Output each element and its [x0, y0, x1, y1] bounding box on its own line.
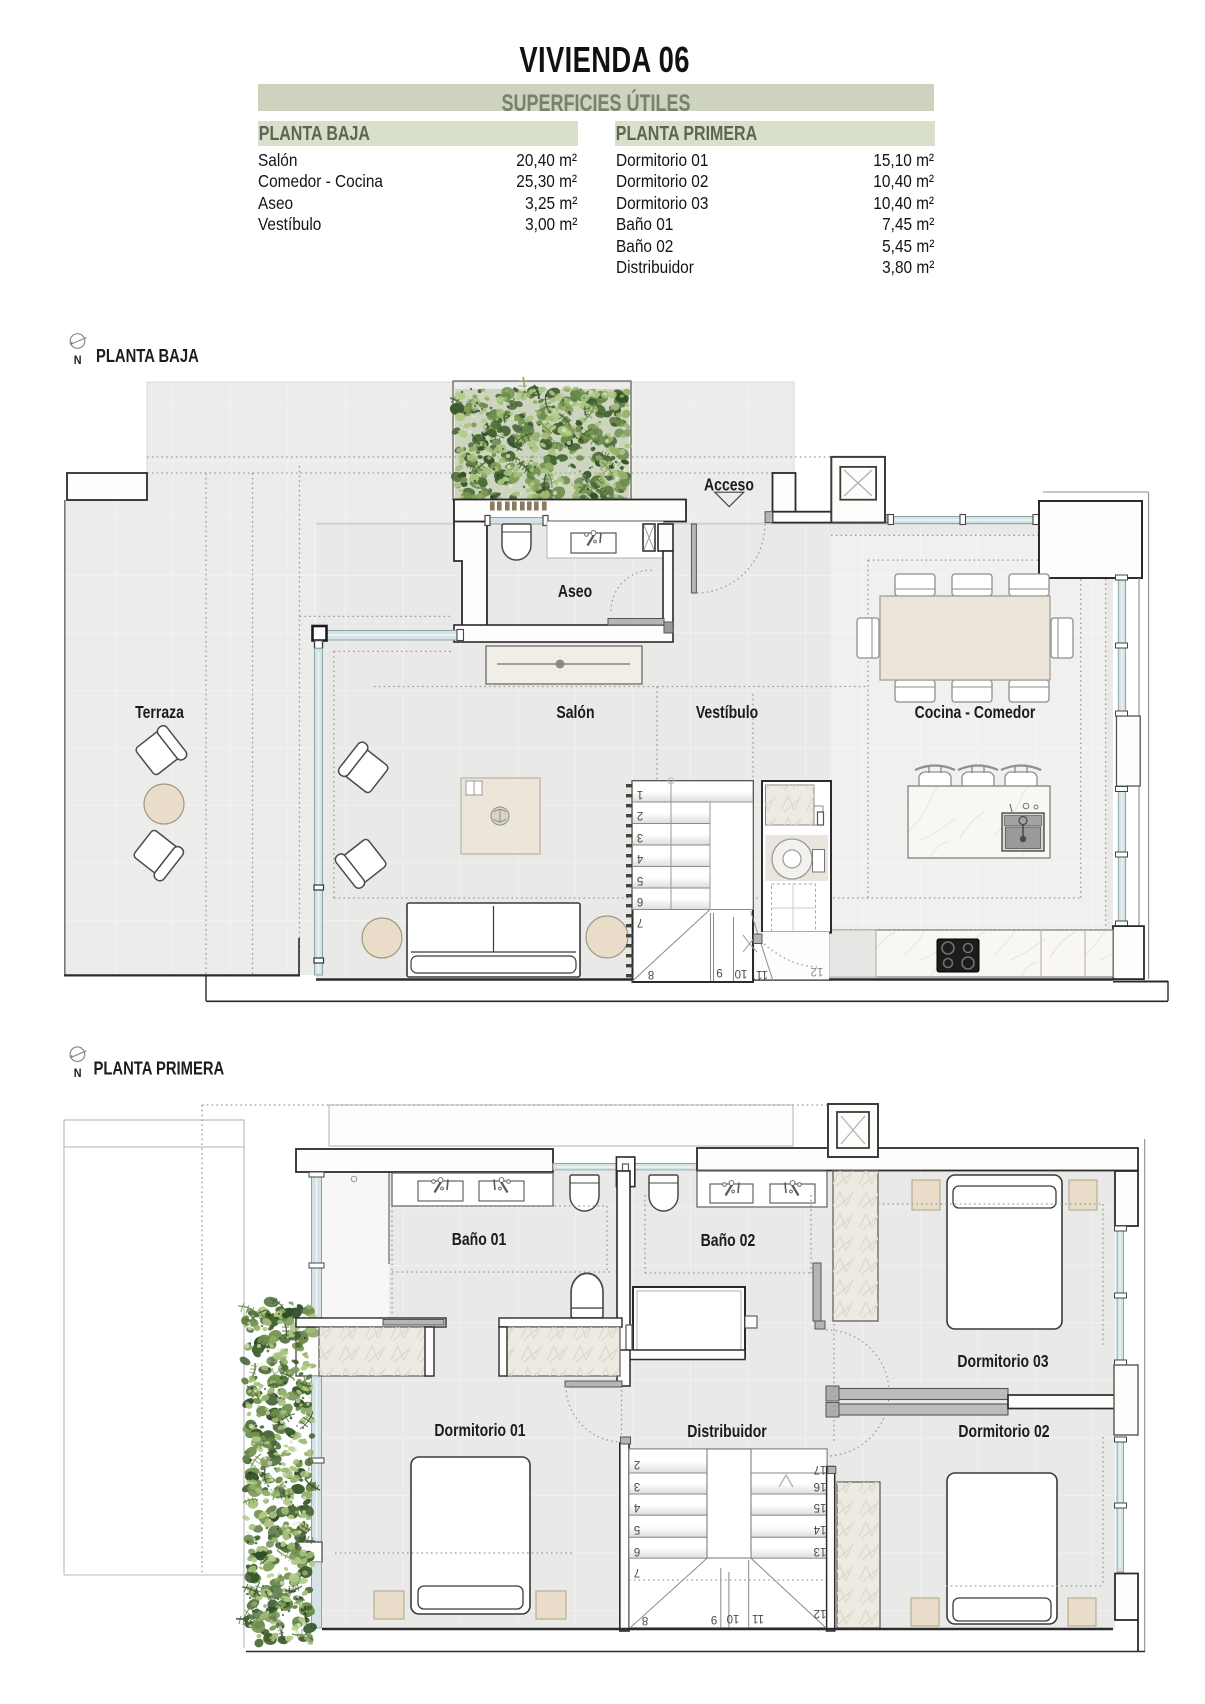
svg-text:Salón: Salón [556, 702, 594, 722]
svg-text:7: 7 [637, 916, 643, 928]
svg-text:12: 12 [814, 1607, 827, 1619]
svg-text:16: 16 [814, 1480, 827, 1492]
svg-text:Dormitorio 02: Dormitorio 02 [958, 1421, 1049, 1441]
svg-text:8: 8 [642, 1614, 648, 1626]
svg-text:14: 14 [813, 1523, 826, 1535]
svg-text:Cocina - Comedor: Cocina - Comedor [915, 702, 1036, 722]
svg-text:9: 9 [716, 966, 722, 978]
svg-text:11: 11 [752, 1612, 764, 1624]
svg-text:N: N [74, 355, 82, 368]
svg-text:PLANTA BAJA: PLANTA BAJA [96, 345, 199, 366]
svg-text:Terraza: Terraza [135, 702, 185, 722]
svg-text:2: 2 [634, 1458, 640, 1470]
svg-text:4: 4 [636, 852, 643, 864]
svg-text:Dormitorio 03: Dormitorio 03 [957, 1351, 1048, 1371]
svg-text:4: 4 [633, 1501, 640, 1513]
svg-text:6: 6 [637, 895, 643, 907]
svg-text:10: 10 [735, 967, 748, 979]
svg-text:15: 15 [814, 1501, 827, 1513]
svg-text:N: N [74, 1068, 82, 1081]
svg-text:17: 17 [814, 1463, 827, 1475]
svg-text:2: 2 [637, 809, 643, 821]
svg-text:Baño 02: Baño 02 [701, 1230, 756, 1250]
svg-text:5: 5 [634, 1523, 640, 1535]
svg-text:1: 1 [637, 788, 643, 800]
svg-text:8: 8 [648, 968, 654, 980]
svg-text:3: 3 [637, 831, 643, 843]
svg-text:6: 6 [634, 1545, 640, 1557]
svg-text:5: 5 [637, 874, 643, 886]
svg-text:PLANTA PRIMERA: PLANTA PRIMERA [94, 1058, 225, 1079]
svg-text:Aseo: Aseo [558, 581, 592, 601]
svg-text:Vestíbulo: Vestíbulo [696, 702, 758, 722]
svg-text:Dormitorio 01: Dormitorio 01 [434, 1420, 525, 1440]
svg-text:3: 3 [634, 1480, 640, 1492]
svg-text:Baño 01: Baño 01 [452, 1229, 507, 1249]
svg-text:11: 11 [756, 968, 768, 980]
svg-text:13: 13 [814, 1545, 827, 1557]
svg-text:9: 9 [711, 1613, 717, 1625]
svg-text:Distribuidor: Distribuidor [687, 1421, 767, 1441]
svg-text:10: 10 [727, 1612, 740, 1624]
svg-text:7: 7 [634, 1566, 640, 1578]
